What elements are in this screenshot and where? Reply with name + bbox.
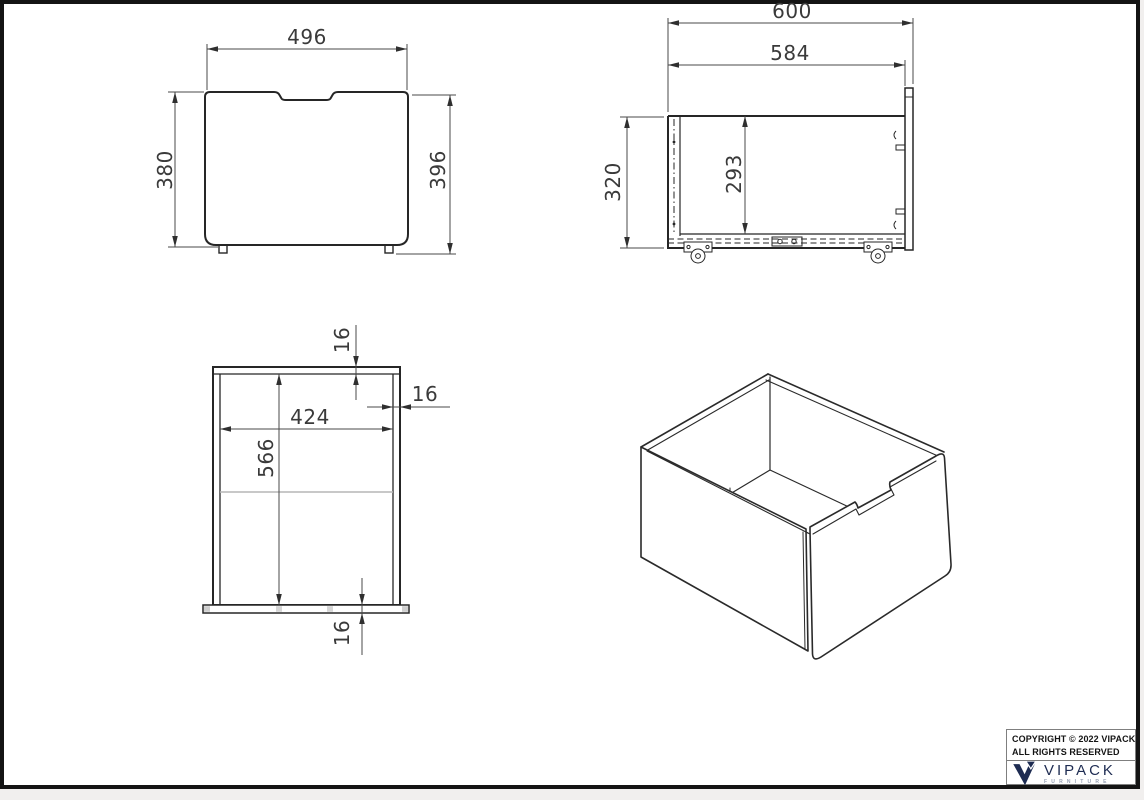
dim-label-front-width: 496 (287, 25, 327, 49)
copyright-line-2: ALL RIGHTS RESERVED (1012, 746, 1131, 759)
side-view (668, 88, 913, 263)
dim-label-front-panel-thickness: 16 (330, 620, 354, 646)
dim-label-front-height-left: 380 (153, 150, 177, 190)
brand-name: VIPACK (1044, 763, 1116, 778)
vipack-logo-icon (1012, 761, 1038, 786)
isometric-view (641, 374, 951, 659)
dim-label-side-width-outer: 600 (772, 0, 812, 23)
dim-label-side-width-inner: 584 (770, 41, 810, 65)
front-right-glide (385, 245, 393, 253)
side-view-dimensions (620, 18, 913, 248)
technical-drawing-canvas: 496 380 396 (0, 0, 1144, 800)
side-panel-outline (668, 116, 905, 248)
dim-label-side-height-outer: 320 (601, 162, 625, 202)
brand-logo: VIPACK FURNITURE (1007, 761, 1135, 786)
front-view (205, 92, 408, 253)
dim-label-side-height-inner: 293 (722, 154, 746, 194)
drawer-front-outline (205, 92, 408, 245)
center-bracket (772, 237, 802, 246)
dim-label-side-wall: 16 (412, 382, 438, 406)
top-view-outer (213, 367, 400, 605)
front-panel-edge (905, 88, 913, 250)
copyright-notice: COPYRIGHT © 2022 VIPACK, ALL RIGHTS RESE… (1007, 730, 1135, 761)
front-left-glide (219, 245, 227, 253)
title-block: COPYRIGHT © 2022 VIPACK, ALL RIGHTS RESE… (1006, 729, 1136, 785)
dim-label-front-height-right: 396 (426, 150, 450, 190)
dim-label-inner-depth: 566 (254, 438, 278, 478)
copyright-line-1: COPYRIGHT © 2022 VIPACK, (1012, 733, 1131, 746)
brand-tagline: FURNITURE (1044, 780, 1116, 785)
caster-wheel-left (684, 242, 712, 263)
front-view-dimensions (168, 44, 456, 254)
cam-dowels (894, 131, 905, 229)
iso-front-panel (810, 454, 951, 659)
front-panel-strip (203, 605, 409, 613)
drawing-page: 496 380 396 (0, 0, 1144, 800)
dim-label-inner-width: 424 (290, 405, 330, 429)
caster-wheel-right (864, 242, 892, 263)
dim-label-rear-wall: 16 (330, 327, 354, 353)
top-view (203, 367, 409, 613)
iso-left-wall (641, 447, 808, 651)
